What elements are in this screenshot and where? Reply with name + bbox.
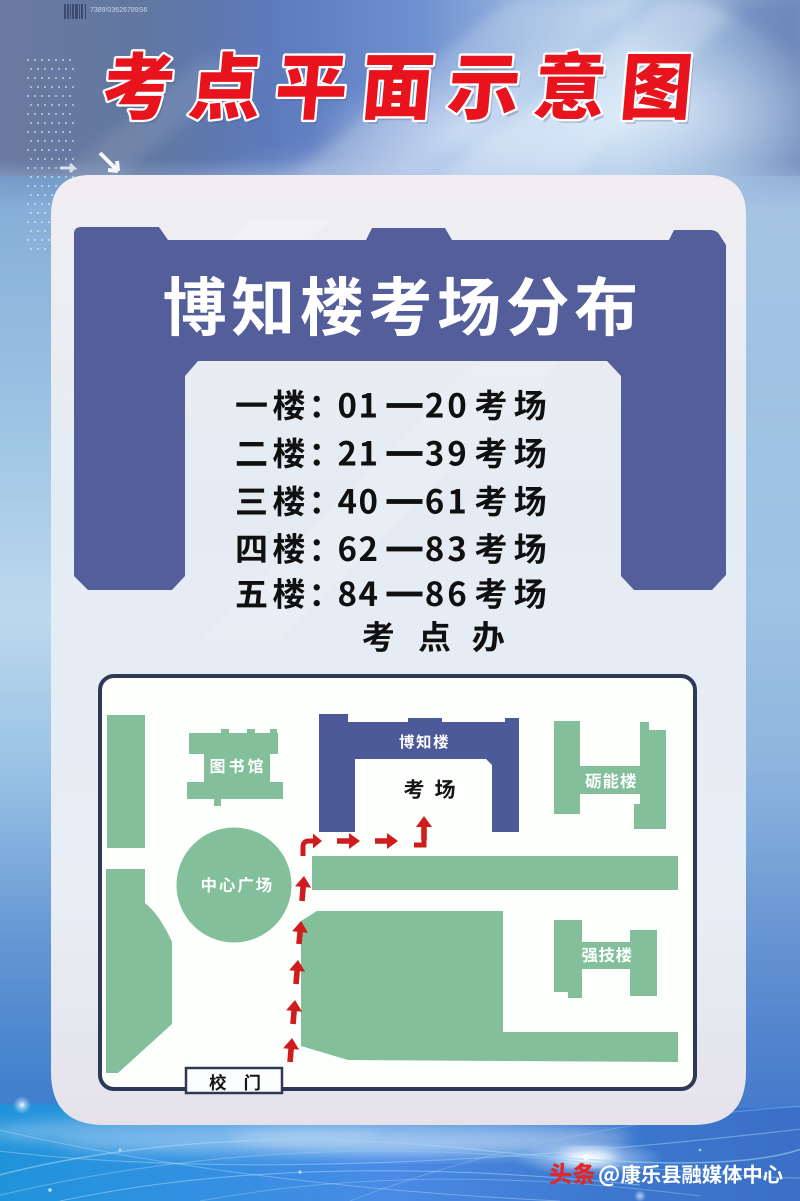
svg-text:7389/03626789S6: 7389/03626789S6 [90,7,147,14]
